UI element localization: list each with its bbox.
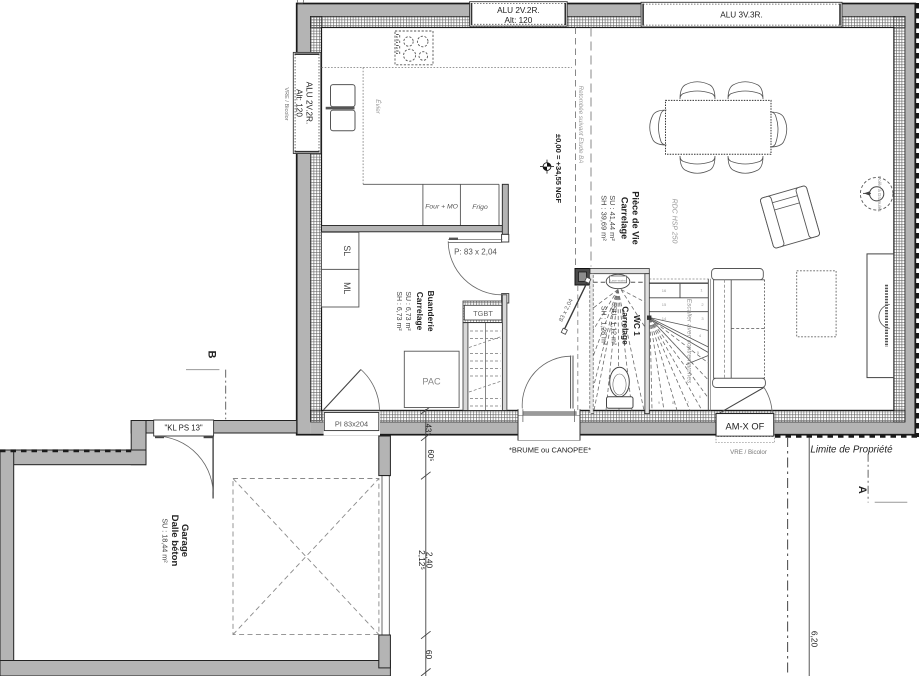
svg-text:PAC: PAC xyxy=(422,377,441,387)
svg-text:±0,00 = +34,55 NGF: ±0,00 = +34,55 NGF xyxy=(554,134,563,204)
svg-text:Pièce de Vie: Pièce de Vie xyxy=(631,191,641,244)
svg-text:SH : 39,69 m²: SH : 39,69 m² xyxy=(599,195,608,241)
svg-text:16: 16 xyxy=(662,288,667,293)
svg-text:Limite de Propriété: Limite de Propriété xyxy=(810,445,893,456)
svg-text:*BRUME ou CANOPEE*: *BRUME ou CANOPEE* xyxy=(509,445,591,454)
svg-text:PI 83x204: PI 83x204 xyxy=(335,419,368,428)
svg-text:SU : 1,12 m²: SU : 1,12 m² xyxy=(609,306,616,346)
svg-text:A: A xyxy=(856,486,868,494)
svg-text:ALU 2V.2R.: ALU 2V.2R. xyxy=(305,82,314,124)
svg-text:Poêle à Granulés: Poêle à Granulés xyxy=(877,176,882,212)
svg-text:Alt: 120: Alt: 120 xyxy=(295,89,304,117)
svg-text:Retombée suivant Etude BA: Retombée suivant Etude BA xyxy=(577,86,584,164)
svg-text:ALU 2V.2R.: ALU 2V.2R. xyxy=(497,6,539,15)
svg-text:TGBT: TGBT xyxy=(473,309,493,318)
svg-text:VRE / Bicolor: VRE / Bicolor xyxy=(730,449,767,456)
svg-text:Carrelage: Carrelage xyxy=(619,197,629,239)
svg-text:60⁵: 60⁵ xyxy=(426,450,435,462)
svg-text:SH : 6,73 m²: SH : 6,73 m² xyxy=(395,291,402,331)
svg-text:ML: ML xyxy=(342,282,352,294)
svg-text:SU : 41,44 m²: SU : 41,44 m² xyxy=(608,195,617,241)
svg-text:SL: SL xyxy=(342,245,352,256)
svg-text:AM-X OF: AM-X OF xyxy=(726,421,765,431)
svg-text:Escalier avec contremarches: Escalier avec contremarches xyxy=(686,299,693,384)
svg-text:Alt: 120: Alt: 120 xyxy=(505,16,533,25)
svg-text:RDC HSP 250: RDC HSP 250 xyxy=(671,199,678,244)
svg-text:Four + MO: Four + MO xyxy=(425,204,458,211)
svg-text:SU : 6,73 m²: SU : 6,73 m² xyxy=(404,291,411,331)
svg-text:B: B xyxy=(206,351,218,359)
svg-text:Frigo: Frigo xyxy=(472,204,488,211)
svg-text:60: 60 xyxy=(424,650,434,660)
svg-text:14: 14 xyxy=(662,316,667,321)
svg-text:Buanderie: Buanderie xyxy=(426,291,436,332)
svg-text:15: 15 xyxy=(662,302,667,307)
svg-text:6,20: 6,20 xyxy=(810,631,820,648)
svg-text:Évier: Évier xyxy=(374,99,383,114)
svg-text:2,12⁵: 2,12⁵ xyxy=(417,550,427,570)
svg-text:WC 1: WC 1 xyxy=(632,315,642,336)
svg-text:SU : 18,44 m²: SU : 18,44 m² xyxy=(161,518,170,563)
svg-text:VRE / Bicolor: VRE / Bicolor xyxy=(283,87,289,120)
svg-text:P: 83 x 2,04: P: 83 x 2,04 xyxy=(454,248,497,257)
svg-text:SH : 1,28 m²: SH : 1,28 m² xyxy=(599,306,606,346)
svg-text:Dalle béton: Dalle béton xyxy=(169,515,180,567)
svg-text:ALU 3V.3R.: ALU 3V.3R. xyxy=(720,11,762,20)
svg-text:Carrelage: Carrelage xyxy=(415,292,425,331)
svg-text:Lave-mains: Lave-mains xyxy=(610,279,626,283)
svg-text:43: 43 xyxy=(424,424,433,433)
svg-text:Carrelage: Carrelage xyxy=(621,306,631,345)
svg-text:"KL PS 13": "KL PS 13" xyxy=(164,424,202,433)
